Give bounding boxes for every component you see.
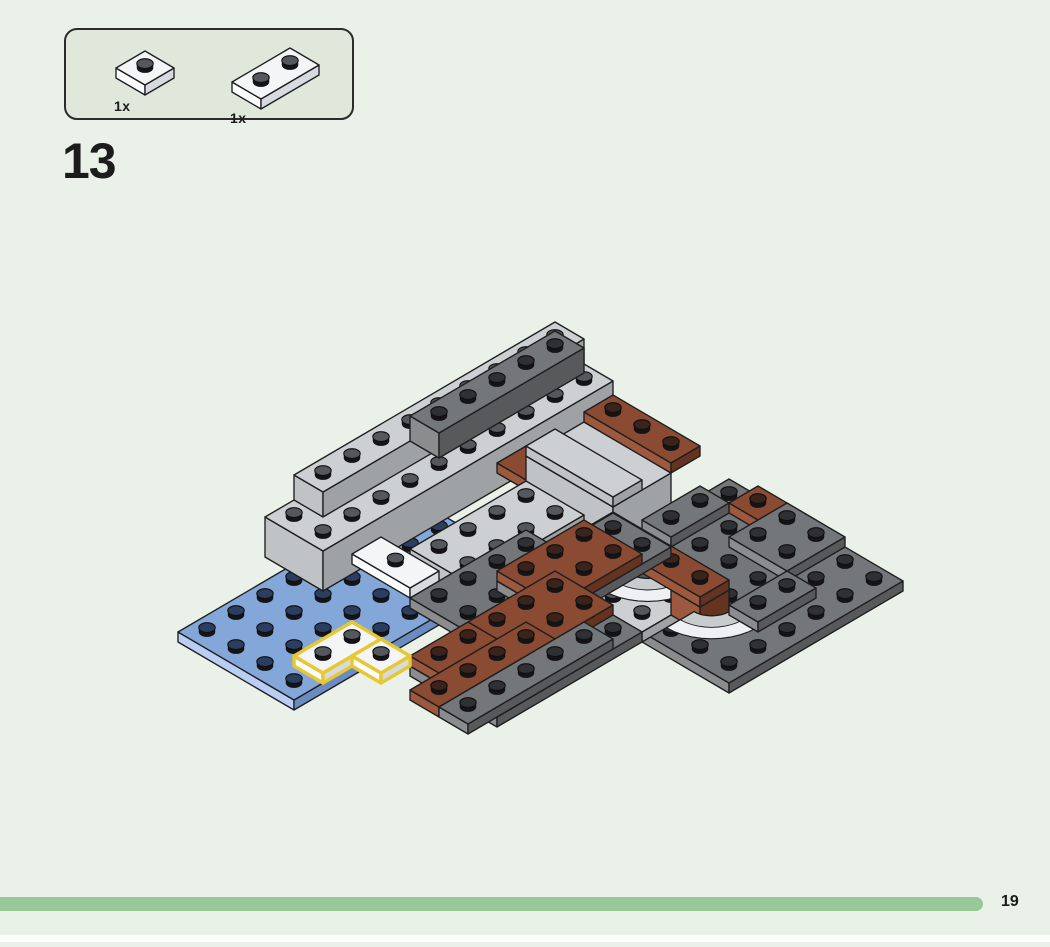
- parts-callout-box: 1x 1x: [64, 28, 354, 120]
- part-quantity-label: 1x: [230, 110, 247, 126]
- part-item-plate-1x2: 1x: [216, 36, 338, 126]
- page-bottom-edge: [0, 935, 1050, 942]
- instruction-page: 1x 1x 13 19: [0, 0, 1050, 942]
- part-image-plate-1x1: [100, 36, 190, 102]
- part-quantity-label: 1x: [114, 98, 131, 114]
- part-item-plate-1x1: 1x: [100, 36, 190, 114]
- build-illustration-wrap: [0, 0, 1050, 942]
- page-number: 19: [1001, 893, 1019, 911]
- progress-bar: [0, 897, 983, 911]
- part-image-plate-1x2: [216, 36, 338, 114]
- step-number: 13: [62, 132, 116, 190]
- build-step-illustration: [0, 0, 1050, 942]
